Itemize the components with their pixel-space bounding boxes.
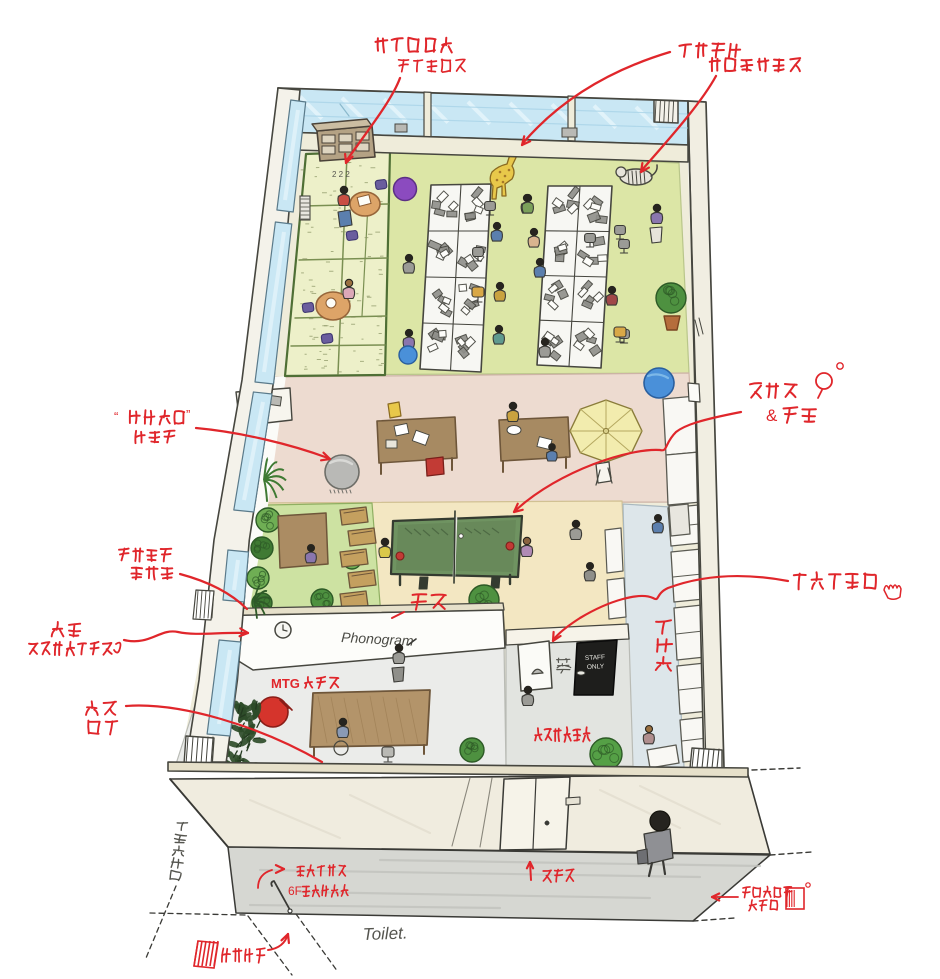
svg-text:6F: 6F bbox=[288, 884, 302, 898]
svg-text:”: ” bbox=[186, 407, 190, 422]
svg-text:Toilet.: Toilet. bbox=[362, 923, 407, 944]
svg-text:MTG: MTG bbox=[271, 676, 300, 691]
svg-text:ONLY: ONLY bbox=[587, 663, 605, 671]
svg-text:“: “ bbox=[114, 409, 118, 424]
svg-text:&: & bbox=[766, 406, 778, 425]
svg-text:STAFF: STAFF bbox=[585, 654, 605, 662]
svg-text:2 2 2: 2 2 2 bbox=[332, 170, 350, 179]
